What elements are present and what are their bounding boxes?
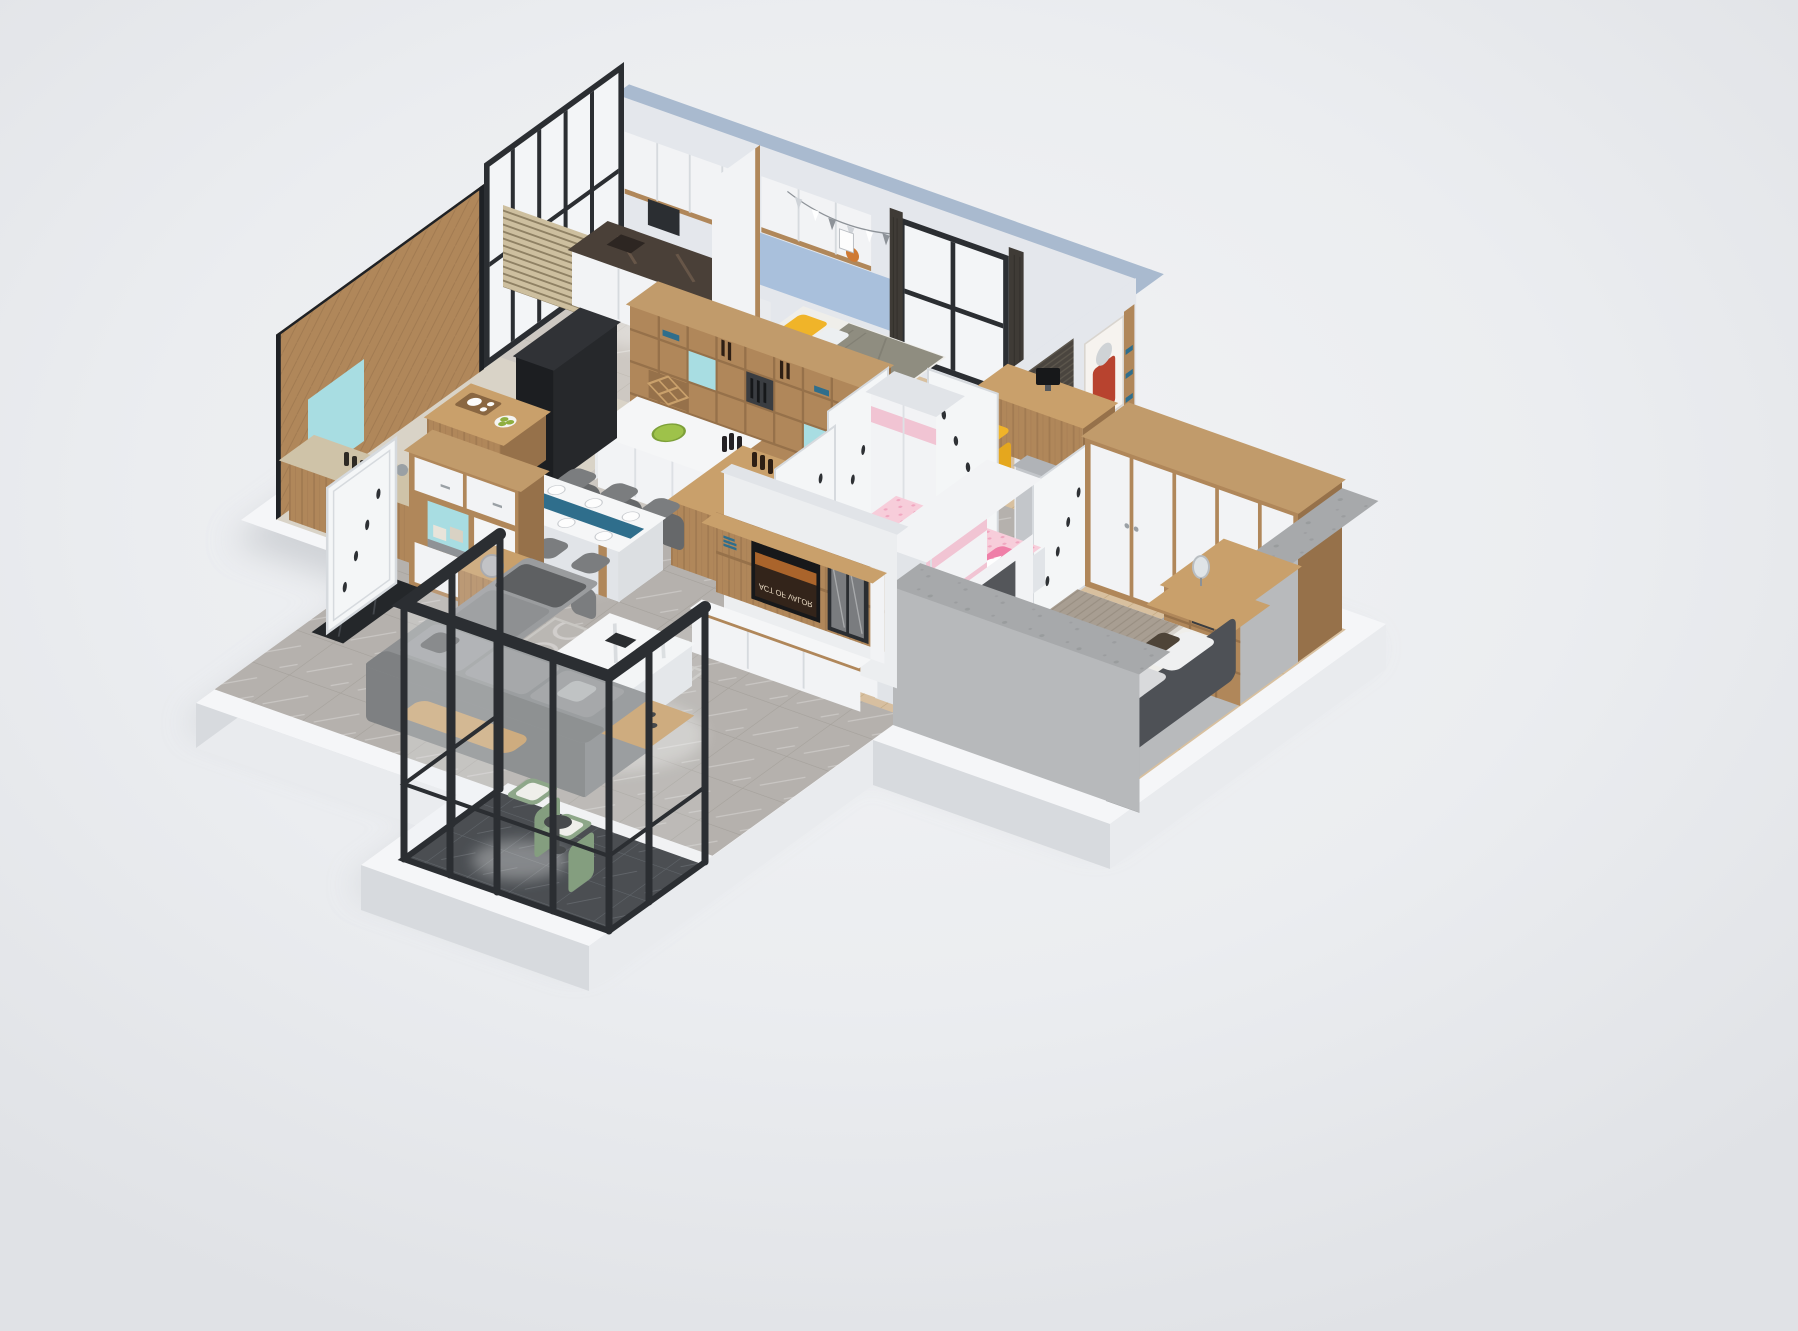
kettle xyxy=(396,464,408,476)
vanity-mirror xyxy=(1193,556,1209,578)
isometric-apartment-scene: ACT OF VALOR xyxy=(0,0,1798,1331)
apartment-render-stage: ACT OF VALOR xyxy=(0,0,1798,1331)
desk-monitor xyxy=(1036,368,1060,385)
